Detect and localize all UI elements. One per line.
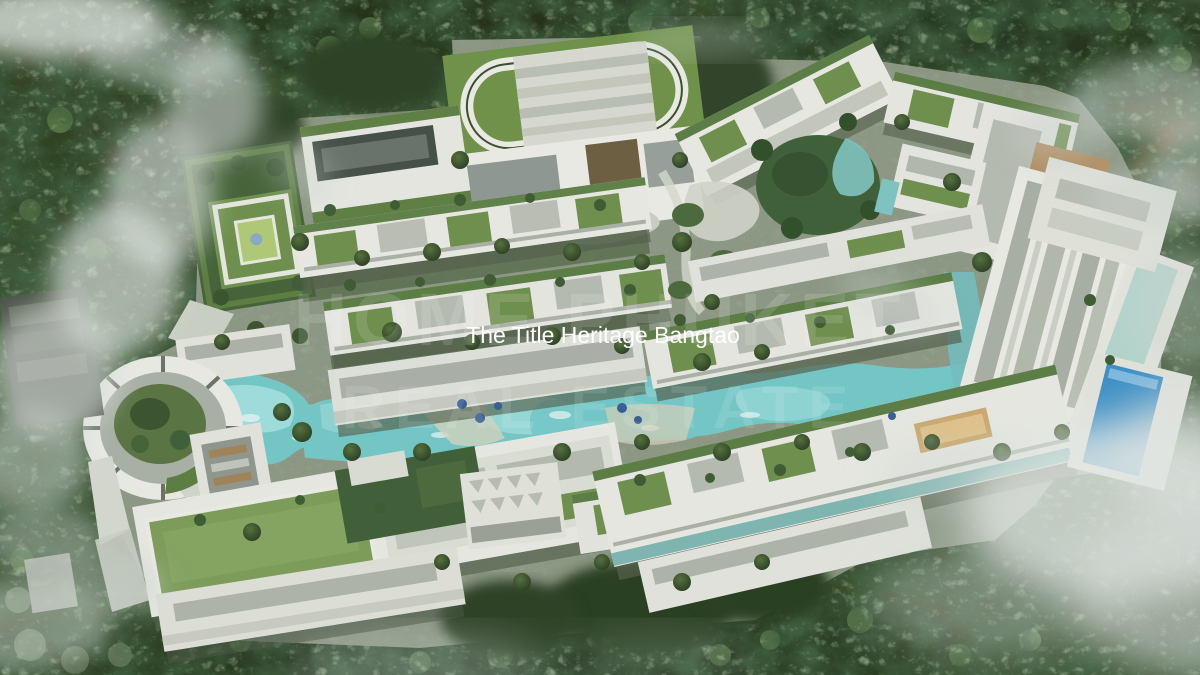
svg-text:REAL ESTATE: REAL ESTATE bbox=[342, 374, 859, 441]
svg-text:HOME PHUKET: HOME PHUKET bbox=[294, 278, 907, 361]
svg-text:The Title Heritage Bangtao: The Title Heritage Bangtao bbox=[466, 322, 740, 348]
